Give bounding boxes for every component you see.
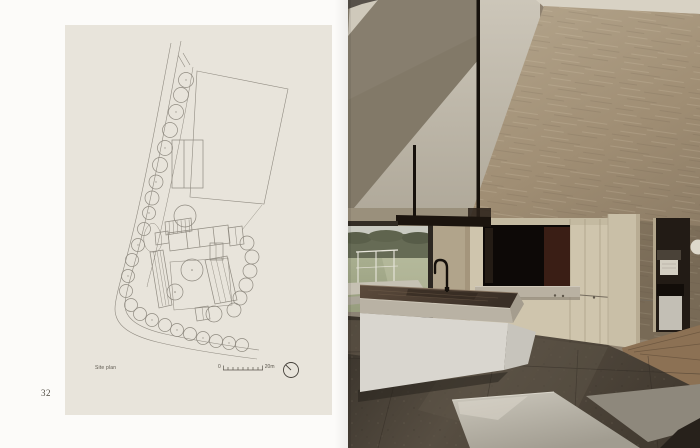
photo-edge-shade — [348, 0, 351, 448]
interior-photo — [348, 0, 700, 448]
cabinet-side-panel — [608, 214, 640, 349]
north-arrow-icon — [281, 359, 301, 379]
tree-row-bottom — [125, 299, 249, 352]
page-number: 32 — [41, 388, 51, 398]
site-plan-drawing — [65, 25, 332, 415]
left-page: Site plan 0 — [0, 0, 348, 448]
scale-end-label: 20m — [265, 364, 275, 371]
plan-caption: Site plan — [95, 365, 116, 371]
scale-bar-ticks — [223, 363, 263, 371]
building-cluster — [144, 205, 262, 322]
scale-start-label: 0 — [218, 364, 221, 371]
tree-row-left — [120, 73, 194, 298]
right-page — [348, 0, 700, 448]
gutter-shadow — [334, 0, 348, 448]
fireplace-niche — [483, 225, 570, 286]
site-plan-panel: Site plan 0 — [65, 25, 332, 415]
scale-bar: 0 20m — [218, 363, 275, 371]
hallway-doorway — [653, 218, 690, 332]
book-spread: Site plan 0 — [0, 0, 700, 448]
